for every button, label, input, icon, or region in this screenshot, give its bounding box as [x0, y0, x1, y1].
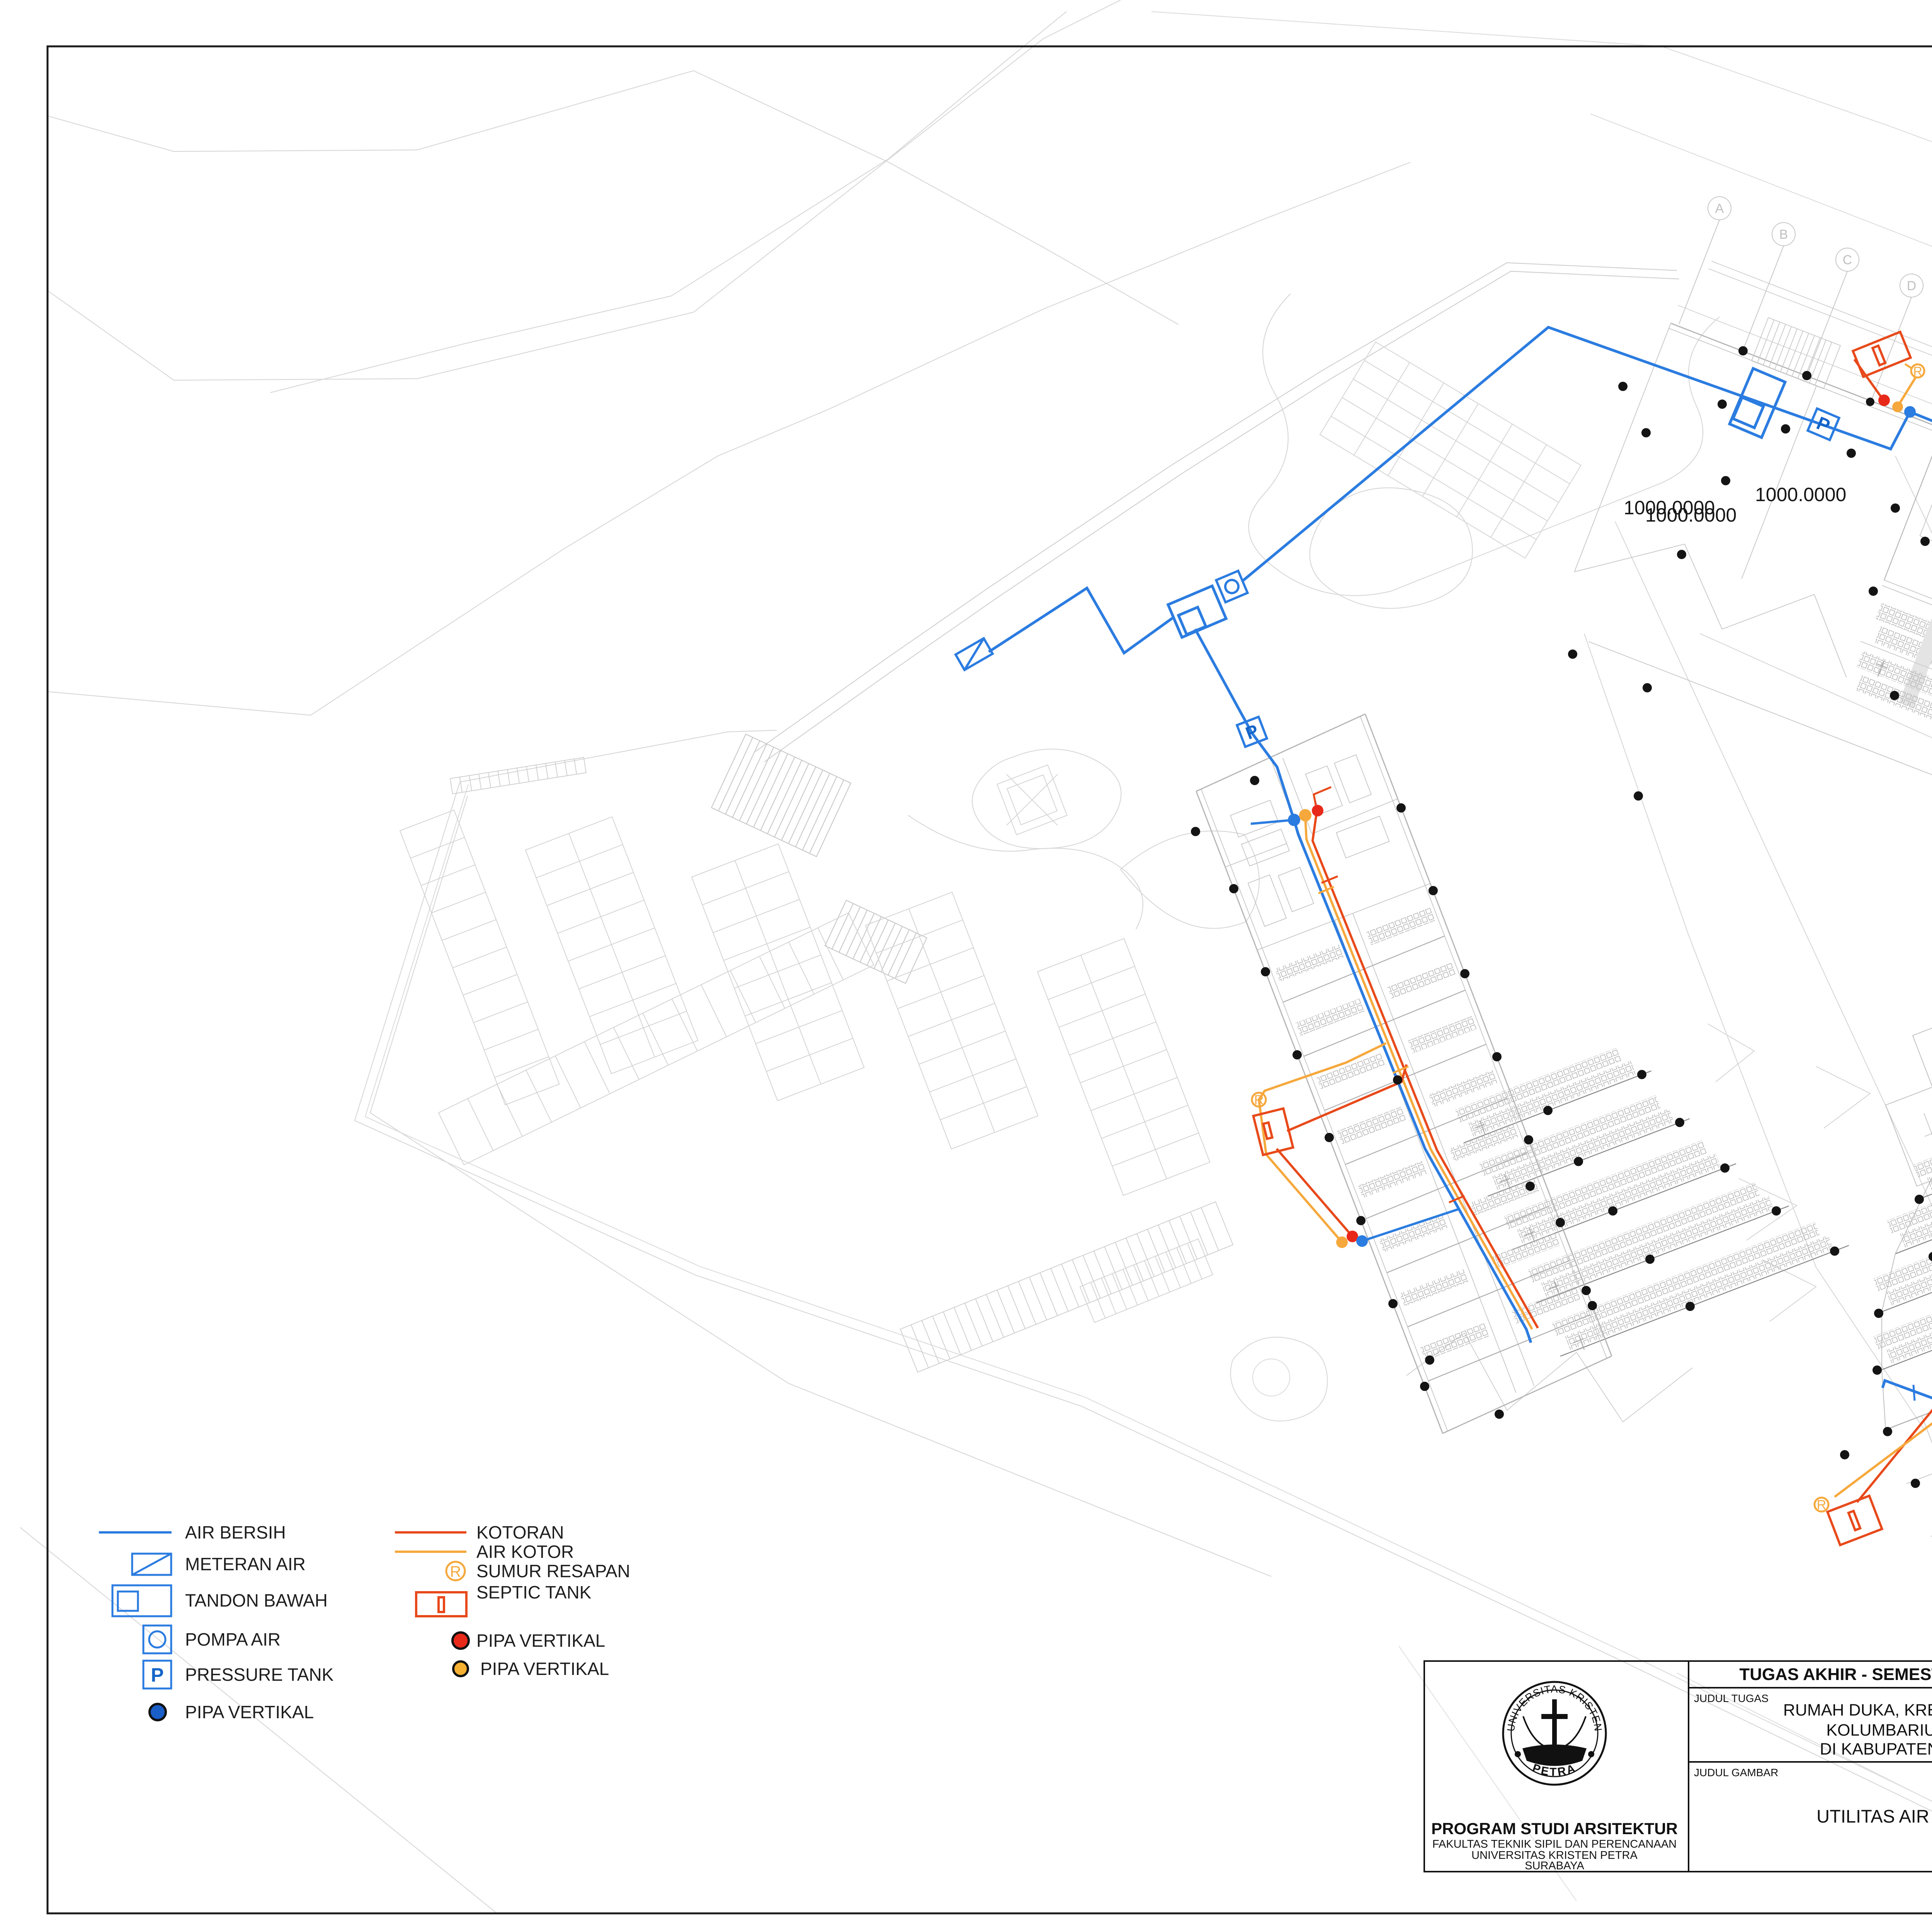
svg-text:P: P: [151, 1664, 163, 1686]
svg-text:TUGAS AKHIR - SEMESTER GENAP 2: TUGAS AKHIR - SEMESTER GENAP 2023/2024: [1739, 1665, 1932, 1684]
svg-text:UTILITAS AIR: UTILITAS AIR: [1816, 1806, 1929, 1826]
svg-text:B: B: [1779, 227, 1788, 242]
svg-text:RUMAH DUKA, KREMATORIUM, DAN: RUMAH DUKA, KREMATORIUM, DAN: [1783, 1701, 1932, 1719]
svg-text:R: R: [1913, 364, 1922, 378]
svg-text:SEPTIC TANK: SEPTIC TANK: [476, 1582, 592, 1602]
svg-text:PROGRAM STUDI ARSITEKTUR: PROGRAM STUDI ARSITEKTUR: [1431, 1819, 1678, 1838]
svg-text:JUDUL TUGAS: JUDUL TUGAS: [1694, 1692, 1769, 1704]
svg-text:PIPA VERTIKAL: PIPA VERTIKAL: [185, 1702, 314, 1722]
svg-text:KOLUMBARIUM NASRANI: KOLUMBARIUM NASRANI: [1826, 1721, 1932, 1739]
svg-text:1000.0000: 1000.0000: [1755, 484, 1846, 505]
svg-text:PRESSURE TANK: PRESSURE TANK: [185, 1665, 334, 1685]
svg-text:R: R: [1817, 1498, 1827, 1512]
svg-text:C: C: [1843, 253, 1852, 267]
svg-text:A: A: [1715, 201, 1724, 216]
svg-text:AIR KOTOR: AIR KOTOR: [476, 1542, 574, 1562]
svg-text:METERAN AIR: METERAN AIR: [185, 1554, 306, 1574]
svg-text:AIR BERSIH: AIR BERSIH: [185, 1522, 286, 1542]
svg-text:FAKULTAS TEKNIK SIPIL DAN PERE: FAKULTAS TEKNIK SIPIL DAN PERENCANAAN: [1432, 1838, 1677, 1850]
svg-text:D: D: [1907, 279, 1917, 293]
svg-text:TANDON BAWAH: TANDON BAWAH: [185, 1590, 328, 1610]
svg-text:KOTORAN: KOTORAN: [476, 1522, 564, 1542]
svg-text:SUMUR RESAPAN: SUMUR RESAPAN: [476, 1561, 630, 1581]
svg-text:JUDUL GAMBAR: JUDUL GAMBAR: [1694, 1767, 1778, 1779]
svg-text:1000.0000: 1000.0000: [1645, 504, 1736, 526]
svg-text:DI KABUPATEN PASURUAN: DI KABUPATEN PASURUAN: [1820, 1740, 1932, 1758]
svg-text:POMPA AIR: POMPA AIR: [185, 1629, 281, 1649]
svg-text:R: R: [450, 1563, 461, 1580]
svg-text:PIPA VERTIKAL: PIPA VERTIKAL: [476, 1631, 605, 1651]
svg-text:R: R: [1254, 1093, 1264, 1107]
svg-text:SURABAYA: SURABAYA: [1525, 1860, 1584, 1872]
svg-text:PIPA VERTIKAL: PIPA VERTIKAL: [480, 1659, 609, 1679]
